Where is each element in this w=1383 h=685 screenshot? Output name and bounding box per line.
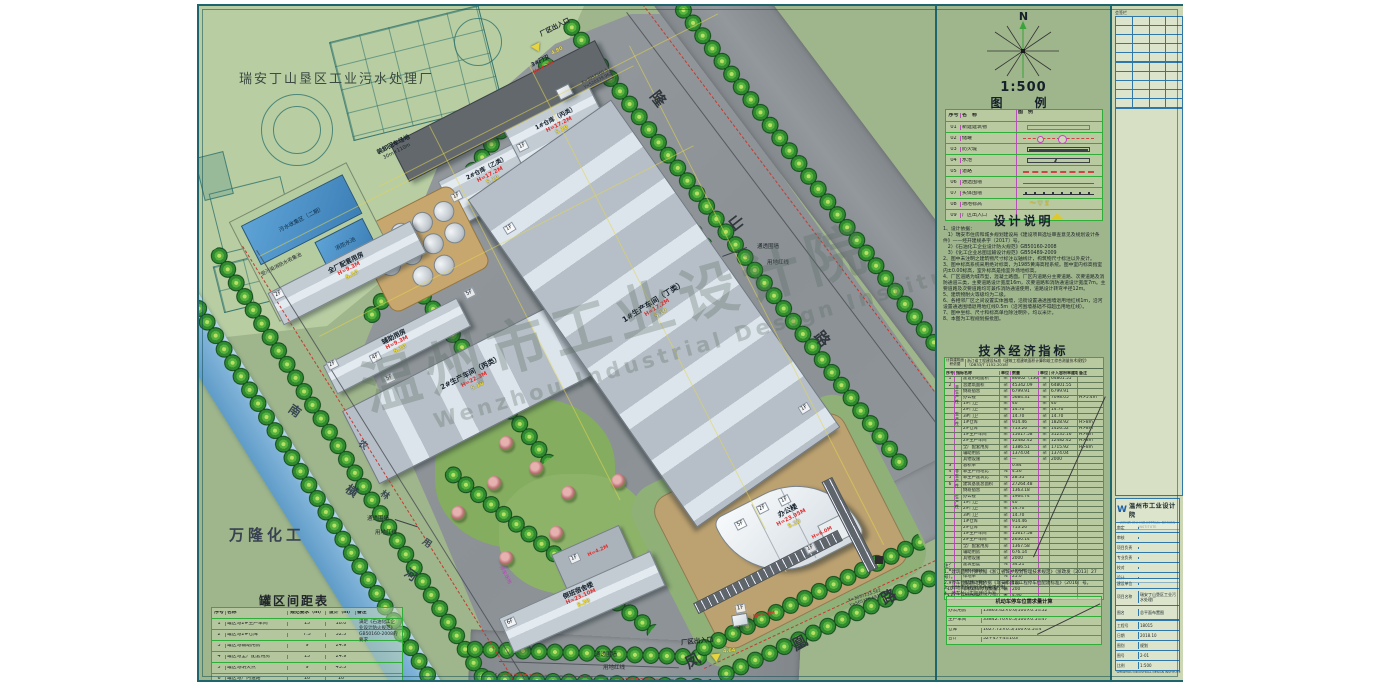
legend-row: 03 防火堤 xyxy=(946,143,1102,154)
legend-row: 01 新建建筑物 xyxy=(946,121,1102,132)
legend-row: 04 水池 xyxy=(946,154,1102,165)
post-notes: 注：1、建筑面积计算依据《浙江省城乡规划管理技术规定》（浙政发〔2013〕27号… xyxy=(944,564,1104,598)
indicator-row: 3 容积率 0.84 xyxy=(945,463,1103,469)
flower-tree xyxy=(499,551,514,566)
indicators-header: 序号 指标名称 单位 数量 单位 计入容积率建筑面积 备注 xyxy=(945,368,1103,376)
indicators-basis: 计算建筑面积依据 浙江省工程建设标准《建筑工程建筑面积计算和竣工综合测量技术规程… xyxy=(945,358,1103,368)
indicator-row: 倒班宿舍 ㎡ 1363.18 xyxy=(945,487,1103,493)
legend-header: 序号 名 称 图 例 xyxy=(946,110,1102,121)
owner-label: 建设单位 xyxy=(1116,581,1138,587)
tank-spacing-row: 4 罐区与全厂配套用房 15 24.9 xyxy=(212,651,402,662)
project-label: 项目名称 xyxy=(1116,594,1138,600)
legend-symbol xyxy=(1021,134,1096,142)
tank-spacing-header: 序号 名称 规范要求（m） 设计（m） 备注 xyxy=(212,608,402,618)
tank-spacing-remark: 满足《石油化工企业设计防火规范》GB50160-2008的要求 xyxy=(359,620,399,643)
clarifier-inner xyxy=(273,106,321,154)
drawing-sheet: 瑞安丁山垦区工业污水处理厂 xyxy=(197,4,1183,682)
indicator-row: 办公楼 ㎡ 1964.74 xyxy=(945,494,1103,500)
tank-spacing-table: 序号 名称 规范要求（m） 设计（m） 备注 1 罐区与2#生产车间 15 18… xyxy=(211,607,403,680)
job-number: 18015 xyxy=(1138,622,1179,629)
info-panel: N 1:500 图 例 序号 名 称 图 例 xyxy=(935,6,1110,680)
qr-mark xyxy=(875,556,883,564)
legend-symbol xyxy=(1021,178,1096,186)
legend-symbol xyxy=(1021,145,1096,153)
post-note-line: 1、建筑面积计算依据《浙江省城乡规划管理技术规定》（浙政发〔2013〕27号）。 xyxy=(944,570,1104,581)
firm-logo-row: W 温州市工业设计院 xyxy=(1116,499,1179,521)
indicator-row: 1#生产车间 ㎡ 15617.58 ㎡ 31235.16 H>8m xyxy=(945,432,1103,438)
parking-calc-table: 机动车停车位需求量计算 办公用房 13863.42×0.6/100×0.5=52… xyxy=(946,596,1102,645)
redline-label-1: 用地红线 xyxy=(375,530,397,537)
redline-label-3: 用地红线 xyxy=(603,665,625,672)
signoff-grid-1 xyxy=(1115,16,1183,62)
category-value: 规划 xyxy=(1138,642,1179,649)
legend-row: 07 实体围墙 xyxy=(946,187,1102,198)
indicator-row: 辅助用房 ㎡ 676.14 xyxy=(945,549,1103,555)
indicator-row: 6 建筑基底总面积 ㎡ 27264.48 xyxy=(945,481,1103,487)
title-block-spacer xyxy=(1115,108,1183,496)
indicator-row: 5 非生产建筑比 % 28.35 xyxy=(945,475,1103,481)
indicator-row: 2 总建筑面积 ㎡ 45342.09 ㎡ 64801.55 xyxy=(945,382,1103,388)
indicator-row: 1#生产车间 ㎡ 15617.58 xyxy=(945,531,1103,537)
indicator-row: 3#门卫 ㎡ 14.70 xyxy=(945,512,1103,518)
indicator-row: 2#门卫 ㎡ 14.70 xyxy=(945,506,1103,512)
indicator-row: 2#仓库 ㎡ 713.26 ㎡ 1426.52 H>8m xyxy=(945,426,1103,432)
indicator-row: 1#仓库 ㎡ 914.46 xyxy=(945,518,1103,524)
bank-label-char: 用 xyxy=(420,535,435,551)
indicator-row: 其他设施 ㎡ 2000 xyxy=(945,555,1103,561)
legend-symbol xyxy=(1021,200,1096,208)
parking-calc-row: 合计 52+47+4=103 xyxy=(947,635,1101,645)
design-note-line: 4、厂区道路为城市型，混凝土路面。厂区内道路分主要道路、次要道路及消防通道三类，… xyxy=(943,275,1106,293)
entrance-arrow-bottom xyxy=(711,653,722,662)
parking-calc-rows: 办公用房 13863.42×0.6/100×0.5=52 生产车间 33842.… xyxy=(947,606,1101,644)
fence-label-2: 通透围墙 xyxy=(757,244,779,251)
group-label-nonproduction-2: 非生产性 xyxy=(954,469,960,495)
flower-tree xyxy=(451,506,466,521)
existing-plant-title: 瑞安丁山垦区工业污水处理厂 xyxy=(239,72,434,88)
entrance-elev-bottom: 4.64 xyxy=(723,647,736,654)
job-label: 工程号 xyxy=(1116,623,1138,629)
group-label-production: 生产性 xyxy=(954,412,960,448)
legend-table: 序号 名 称 图 例 01 新建建筑物 02 储罐 xyxy=(945,109,1103,221)
indicator-row: 全厂配套用房 ㎡ 1367.58 xyxy=(945,543,1103,549)
group-label-production-2: 生产性 xyxy=(954,495,960,531)
legend-symbol xyxy=(1021,156,1096,164)
indicator-row: 2#仓库 ㎡ 713.26 xyxy=(945,525,1103,531)
indicator-row: 1 建设用地面积 ㎡ 86602（130亩） ㎡ 64801.55 xyxy=(945,376,1103,382)
sheet-number: 2-01 xyxy=(1138,652,1179,659)
sign-label: 校对 xyxy=(1116,565,1138,571)
gatehouse-1-floors: 1F xyxy=(734,603,746,613)
design-note-line: 8、本图为工程规划报批图。 xyxy=(943,317,1106,323)
date-value: 2018.10 xyxy=(1138,632,1179,639)
sign-label: 项目负责 xyxy=(1116,545,1138,551)
indicator-row: 2#生产车间 ㎡ 2630.14 xyxy=(945,537,1103,543)
number-fields: 工程号18015 日期2018.10 图别规划 图号2-01 比例1:500 xyxy=(1115,620,1180,671)
sign-label: 专业负责 xyxy=(1116,555,1138,561)
firm-name: 温州市工业设计院 xyxy=(1129,501,1178,519)
tank-spacing-row: 6 罐区与厂内道路 10 10 xyxy=(212,673,402,680)
tank-spacing-row: 5 罐区与明火点 9 43.5 xyxy=(212,662,402,673)
redline-label-2: 用地红线 xyxy=(767,260,789,267)
indicator-row: 1#门卫 ㎡ 40 xyxy=(945,500,1103,506)
legend-row: 06 通透围墙 xyxy=(946,176,1102,187)
flower-tree xyxy=(499,436,514,451)
sheet-no-label: 图号 xyxy=(1116,653,1138,659)
scale-field-label: 比例 xyxy=(1116,663,1138,669)
sign-label: 审定 xyxy=(1116,525,1138,531)
compass-rose xyxy=(983,20,1063,86)
flower-tree xyxy=(549,526,564,541)
design-note-line: 1）瑞安市住房和城乡规划建设局《建设项目选址审查意见及规划设计条件》——经开建规… xyxy=(943,233,1106,245)
legend-row: 08 场地标高 xyxy=(946,198,1102,209)
legend-symbol xyxy=(1021,189,1096,197)
owner-value xyxy=(1138,583,1179,585)
indicator-row: 全厂配套用房 ㎡ 1386.51 ㎡ 1715.92 H>8m xyxy=(945,444,1103,450)
indicator-row: 1#门卫 ㎡ 40 ㎡ 40 xyxy=(945,401,1103,407)
pond xyxy=(199,151,234,201)
indicator-row: 4 非生产用地比 % 4.26 xyxy=(945,469,1103,475)
legend-row: 05 道路 xyxy=(946,165,1102,176)
indicator-row: 3#门卫 ㎡ 14.70 ㎡ 14.70 xyxy=(945,413,1103,419)
legend-symbol xyxy=(1021,123,1096,131)
indicator-row: 倒班宿舍 ㎡ 6799.91 ㎡ 6799.91 xyxy=(945,388,1103,394)
category-label: 图别 xyxy=(1116,643,1138,649)
strip-footer: WENZHOU INDUSTRIAL DESIGN INSTITUTE xyxy=(1114,670,1183,674)
neighbor-plant-label: 万隆化工 xyxy=(229,526,305,544)
indicator-row: 2#生产车间 ㎡ 12482.42 ㎡ 12482.42 H>8m xyxy=(945,438,1103,444)
storage-tank xyxy=(408,262,436,290)
design-notes: 1、设计依据： 1）瑞安市住房和城乡规划建设局《建设项目选址审查意见及规划设计条… xyxy=(943,227,1106,323)
sign-label: 审核 xyxy=(1116,535,1138,541)
drawing-title: 总平面布置图 xyxy=(1138,609,1179,616)
scale-label: 1:500 xyxy=(937,80,1110,95)
indicator-row: 1#仓库 ㎡ 914.46 ㎡ 1828.92 H>8m xyxy=(945,419,1103,425)
indicator-row: 2#门卫 ㎡ 14.70 ㎡ 14.70 xyxy=(945,407,1103,413)
design-note-line: 6、各相邻厂区之间设置实体围墙，沿街设置通透围墙退用地红线1m，沿河设置通透围墙… xyxy=(943,299,1106,311)
indicator-row: 其他设施 ㎡ — ㎡ 2000 xyxy=(945,456,1103,462)
screenshot-root: 瑞安丁山垦区工业污水处理厂 xyxy=(0,0,1383,685)
legend-row: 02 储罐 xyxy=(946,132,1102,143)
project-name: 瑞安丁山垦区工业污水处理厂 xyxy=(1138,591,1179,603)
fence-label-1: 通透围墙 xyxy=(367,516,389,523)
signature-rows: 审定 审核 项目负责 专业负责 校对 设计 xyxy=(1115,522,1180,583)
drawing-label: 图名 xyxy=(1116,610,1138,616)
date-label: 日期 xyxy=(1116,633,1138,639)
project-fields: 建设单位 项目名称瑞安丁山垦区工业污水处理厂 图名总平面布置图 xyxy=(1115,578,1180,620)
flower-tree xyxy=(561,486,576,501)
scale-field-value: 1:500 xyxy=(1138,662,1179,669)
firm-logo: W xyxy=(1117,505,1127,515)
fence-label-3: 通透围墙 xyxy=(595,652,617,659)
signoff-grid-2 xyxy=(1115,62,1183,108)
flower-tree xyxy=(529,461,544,476)
legend-symbol xyxy=(1021,167,1096,175)
parking-calc-row: 生产车间 33842.70×0.5/100×0.5=47 xyxy=(947,616,1101,626)
indicator-row: 办公楼 ㎡ 5684.31 ㎡ 7098.05 H>5.4m xyxy=(945,395,1103,401)
site-plan: 瑞安丁山垦区工业污水处理厂 xyxy=(199,6,935,680)
design-note-line: 3、图中标高系统采用绝对标高，为1985黄海高程系统。图中室内标高指室内±0.0… xyxy=(943,263,1106,275)
title-block-strip: 会签栏 W 温州市工业设计院 WENZHOU INDUSTRIAL DESIGN… xyxy=(1110,6,1183,680)
legend-rows: 01 新建建筑物 02 储罐 03 防火堤 xyxy=(946,121,1102,220)
parking-calc-title: 机动车停车位需求量计算 xyxy=(947,597,1101,606)
parking-calc-row: 仓库 1627.72×0.5/100×0.5=4 xyxy=(947,625,1101,635)
group-label-nonproduction: 非生产性 xyxy=(954,385,960,411)
flower-tree xyxy=(487,476,502,491)
